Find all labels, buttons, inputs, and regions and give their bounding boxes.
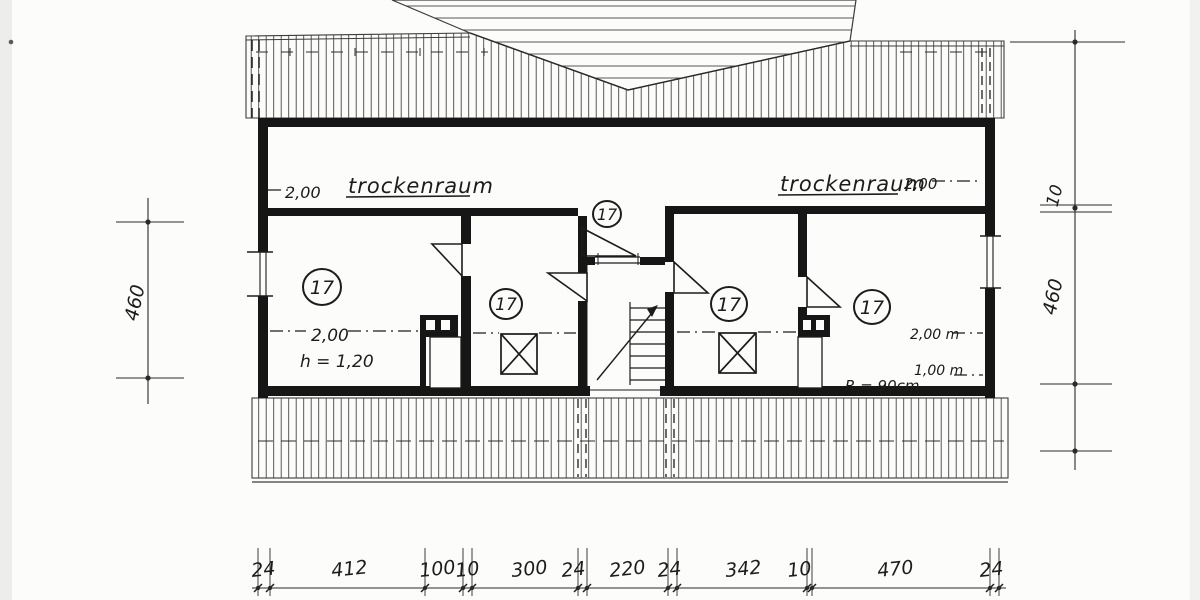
scan-speck [9,40,14,45]
room4-height-label-2: 1,00 m [914,363,963,379]
strip-right-height-label: 2,00 [904,175,937,193]
dim-label-bottom-10: 470 [876,556,914,582]
room1-height-label: 2,00 [311,326,349,346]
floor-plan-sheet: 17 17 17 17 17 2,00 trockenraum trockenr… [0,0,1200,600]
dim-label-bottom-5: 24 [560,558,586,582]
floor-plan-drawing: 17 17 17 17 17 2,00 trockenraum trockenr… [0,0,1200,600]
dimension-labels-bottom: 24 412 100 10 300 24 220 24 342 10 470 2… [250,556,1004,582]
room-number: 17 [860,297,884,319]
room-number: 17 [717,294,741,316]
room-number: 17 [597,205,618,224]
underline [778,194,898,195]
room-number: 17 [495,295,517,315]
scan-edge-right [1190,0,1200,600]
dim-label-bottom-8: 342 [724,556,762,582]
dim-label-bottom-1: 412 [330,556,368,582]
room-number-badge: 17 [593,201,621,227]
room4-height-label-1: 2,00 m [910,327,959,343]
dim-label-bottom-4: 300 [510,556,548,582]
dim-label-bottom-3: 10 [454,558,480,582]
scan-edge-left [0,0,12,600]
dim-label-bottom-7: 24 [656,558,682,582]
room-number: 17 [310,277,334,299]
dim-label-bottom-0: 24 [250,558,276,582]
roof-plan-bottom [252,398,1008,482]
dim-label-bottom-9: 10 [786,558,812,582]
underline [346,196,470,197]
dim-label-bottom-11: 24 [978,558,1004,582]
room1-knee-wall-label: h = 1,20 [300,352,374,372]
trockenraum-left-label: trockenraum [348,174,494,198]
strip-left-height-label: 2,00 [285,183,321,202]
dim-label-bottom-6: 220 [608,556,646,582]
dim-label-bottom-2: 100 [418,556,456,582]
room4-radius-label: R = 90cm [845,377,919,395]
